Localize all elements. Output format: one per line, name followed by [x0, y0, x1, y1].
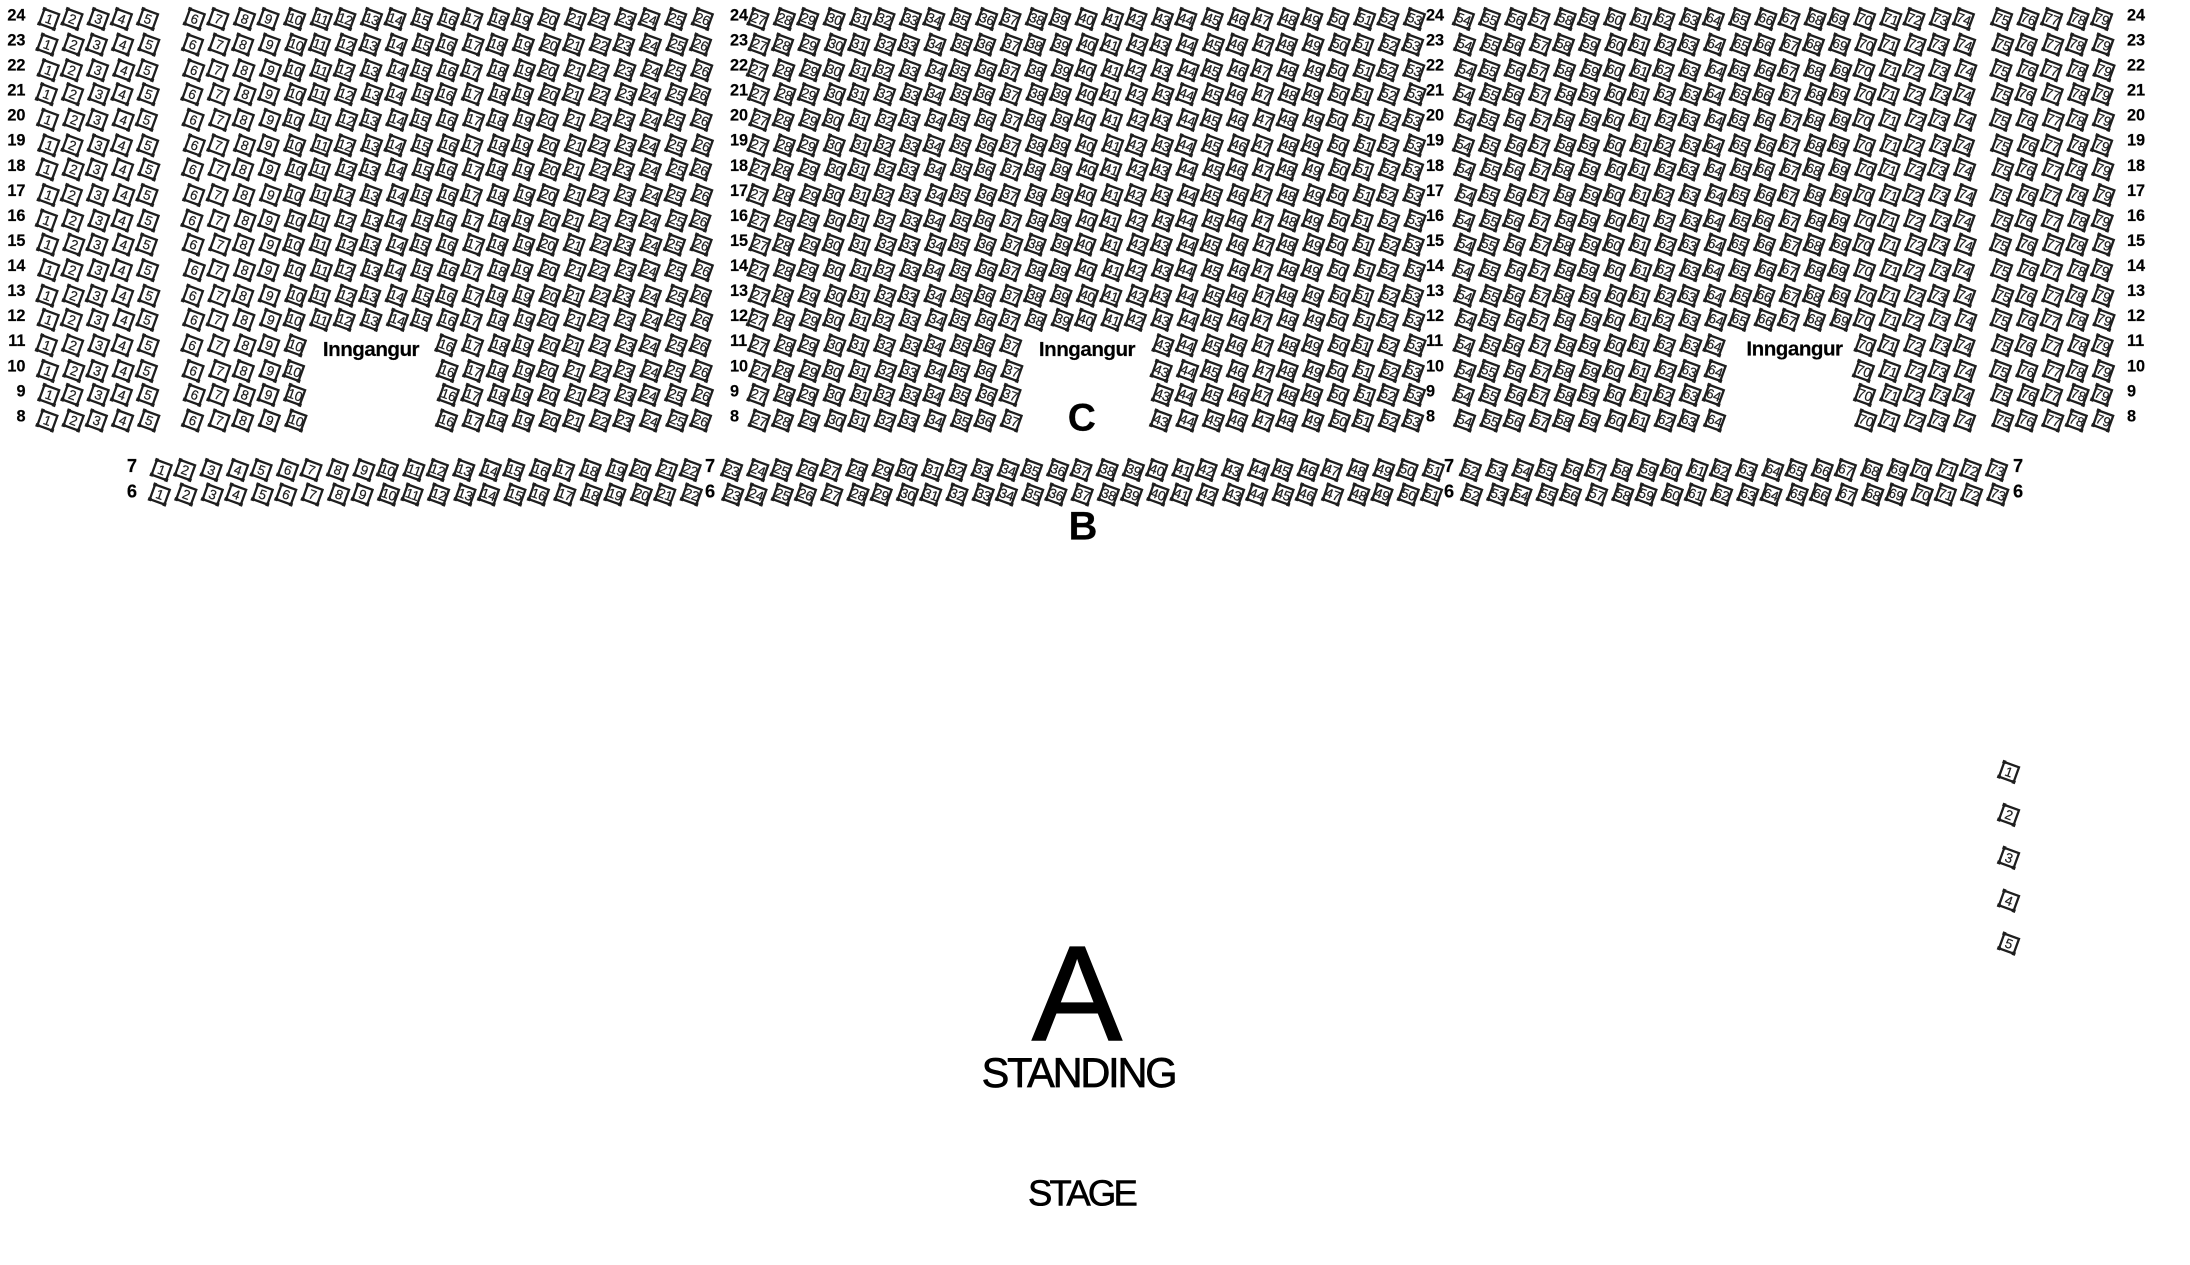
svg-text:18: 18 — [730, 157, 748, 175]
svg-text:7: 7 — [2013, 455, 2023, 476]
svg-text:11: 11 — [2127, 332, 2144, 350]
svg-text:20: 20 — [730, 107, 748, 125]
svg-text:STAGE: STAGE — [1028, 1173, 1136, 1214]
svg-text:21: 21 — [2127, 82, 2145, 100]
svg-text:6: 6 — [1444, 481, 1454, 502]
svg-text:7: 7 — [127, 455, 137, 476]
svg-text:15: 15 — [1426, 232, 1444, 250]
svg-text:24: 24 — [1426, 6, 1444, 24]
svg-text:23: 23 — [7, 32, 25, 50]
svg-text:21: 21 — [730, 82, 748, 100]
svg-text:6: 6 — [705, 481, 715, 502]
svg-text:16: 16 — [1426, 207, 1444, 225]
svg-text:18: 18 — [1426, 157, 1444, 175]
svg-text:STANDING: STANDING — [982, 1049, 1176, 1096]
svg-text:18: 18 — [7, 157, 25, 175]
svg-text:8: 8 — [730, 407, 739, 425]
svg-text:15: 15 — [2127, 232, 2145, 250]
svg-text:Inngangur: Inngangur — [1746, 338, 1843, 361]
svg-text:13: 13 — [1426, 282, 1444, 300]
svg-text:8: 8 — [2127, 407, 2136, 425]
svg-text:12: 12 — [1426, 307, 1444, 325]
svg-text:15: 15 — [730, 232, 748, 250]
svg-text:19: 19 — [7, 132, 25, 150]
svg-text:24: 24 — [7, 6, 25, 24]
svg-text:23: 23 — [730, 32, 748, 50]
svg-text:19: 19 — [2127, 132, 2145, 150]
svg-text:6: 6 — [127, 481, 137, 502]
svg-text:17: 17 — [1426, 182, 1444, 200]
svg-text:19: 19 — [730, 132, 748, 150]
svg-text:23: 23 — [2127, 32, 2145, 50]
svg-text:16: 16 — [2127, 207, 2145, 225]
svg-text:8: 8 — [16, 407, 25, 425]
svg-text:Inngangur: Inngangur — [1039, 338, 1136, 361]
svg-text:C: C — [1068, 397, 1096, 440]
svg-text:19: 19 — [1426, 132, 1444, 150]
svg-text:14: 14 — [2127, 257, 2145, 275]
svg-text:10: 10 — [7, 357, 25, 375]
svg-text:9: 9 — [730, 382, 739, 400]
svg-text:9: 9 — [1426, 382, 1435, 400]
svg-text:20: 20 — [1426, 107, 1444, 125]
svg-text:9: 9 — [16, 382, 25, 400]
svg-text:14: 14 — [730, 257, 748, 275]
svg-text:15: 15 — [7, 232, 25, 250]
svg-text:24: 24 — [2127, 6, 2145, 24]
svg-text:9: 9 — [2127, 382, 2136, 400]
svg-text:11: 11 — [1426, 332, 1443, 350]
svg-text:20: 20 — [7, 107, 25, 125]
svg-text:11: 11 — [8, 332, 25, 350]
svg-text:17: 17 — [2127, 182, 2145, 200]
svg-text:14: 14 — [7, 257, 25, 275]
svg-text:13: 13 — [730, 282, 748, 300]
svg-text:B: B — [1069, 505, 1098, 549]
svg-text:21: 21 — [7, 82, 25, 100]
svg-text:12: 12 — [730, 307, 748, 325]
svg-text:17: 17 — [7, 182, 25, 200]
svg-text:13: 13 — [7, 282, 25, 300]
svg-text:8: 8 — [1426, 407, 1435, 425]
svg-text:10: 10 — [1426, 357, 1444, 375]
svg-text:A: A — [1032, 918, 1122, 1069]
svg-text:7: 7 — [1444, 455, 1454, 476]
svg-text:23: 23 — [1426, 32, 1444, 50]
svg-text:22: 22 — [7, 57, 25, 75]
svg-text:7: 7 — [705, 455, 715, 476]
svg-text:18: 18 — [2127, 157, 2145, 175]
svg-text:13: 13 — [2127, 282, 2145, 300]
svg-text:6: 6 — [2013, 481, 2023, 502]
svg-text:17: 17 — [730, 182, 748, 200]
svg-text:22: 22 — [730, 57, 748, 75]
svg-text:16: 16 — [7, 207, 25, 225]
svg-text:Inngangur: Inngangur — [323, 338, 420, 361]
svg-text:20: 20 — [2127, 107, 2145, 125]
svg-text:14: 14 — [1426, 257, 1444, 275]
svg-text:16: 16 — [730, 207, 748, 225]
svg-text:11: 11 — [730, 332, 747, 350]
svg-text:22: 22 — [2127, 57, 2145, 75]
svg-text:21: 21 — [1426, 82, 1444, 100]
svg-text:22: 22 — [1426, 57, 1444, 75]
svg-text:24: 24 — [730, 6, 748, 24]
svg-text:10: 10 — [2127, 357, 2145, 375]
svg-text:12: 12 — [7, 307, 25, 325]
svg-text:12: 12 — [2127, 307, 2145, 325]
svg-text:10: 10 — [730, 357, 748, 375]
